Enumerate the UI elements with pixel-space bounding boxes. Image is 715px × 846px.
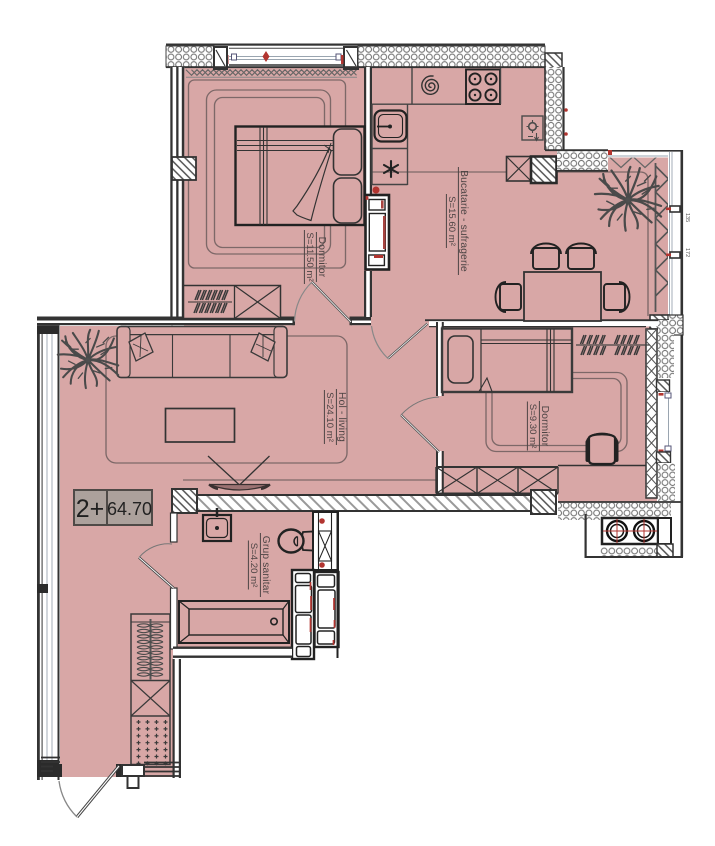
svg-text:S=24.10 m²: S=24.10 m²: [324, 392, 335, 443]
svg-text:S=4.20 m²: S=4.20 m²: [248, 543, 259, 588]
svg-text:Bucatarie - sufragerie: Bucatarie - sufragerie: [458, 170, 469, 272]
svg-text:Grup sanitar: Grup sanitar: [260, 536, 271, 595]
svg-text:Hol - living: Hol - living: [336, 392, 347, 442]
svg-text:2+: 2+: [76, 495, 105, 523]
svg-text:Dormitor: Dormitor: [539, 406, 550, 447]
svg-text:S=15.60 m²: S=15.60 m²: [446, 196, 457, 247]
svg-text:135: 135: [684, 213, 690, 222]
svg-text:S=11.50 m²: S=11.50 m²: [304, 232, 315, 282]
svg-text:64.70: 64.70: [107, 499, 152, 519]
svg-text:Dormitor: Dormitor: [316, 237, 327, 278]
svg-text:172: 172: [684, 248, 690, 257]
svg-text:S=9.30 m²: S=9.30 m²: [527, 404, 538, 449]
